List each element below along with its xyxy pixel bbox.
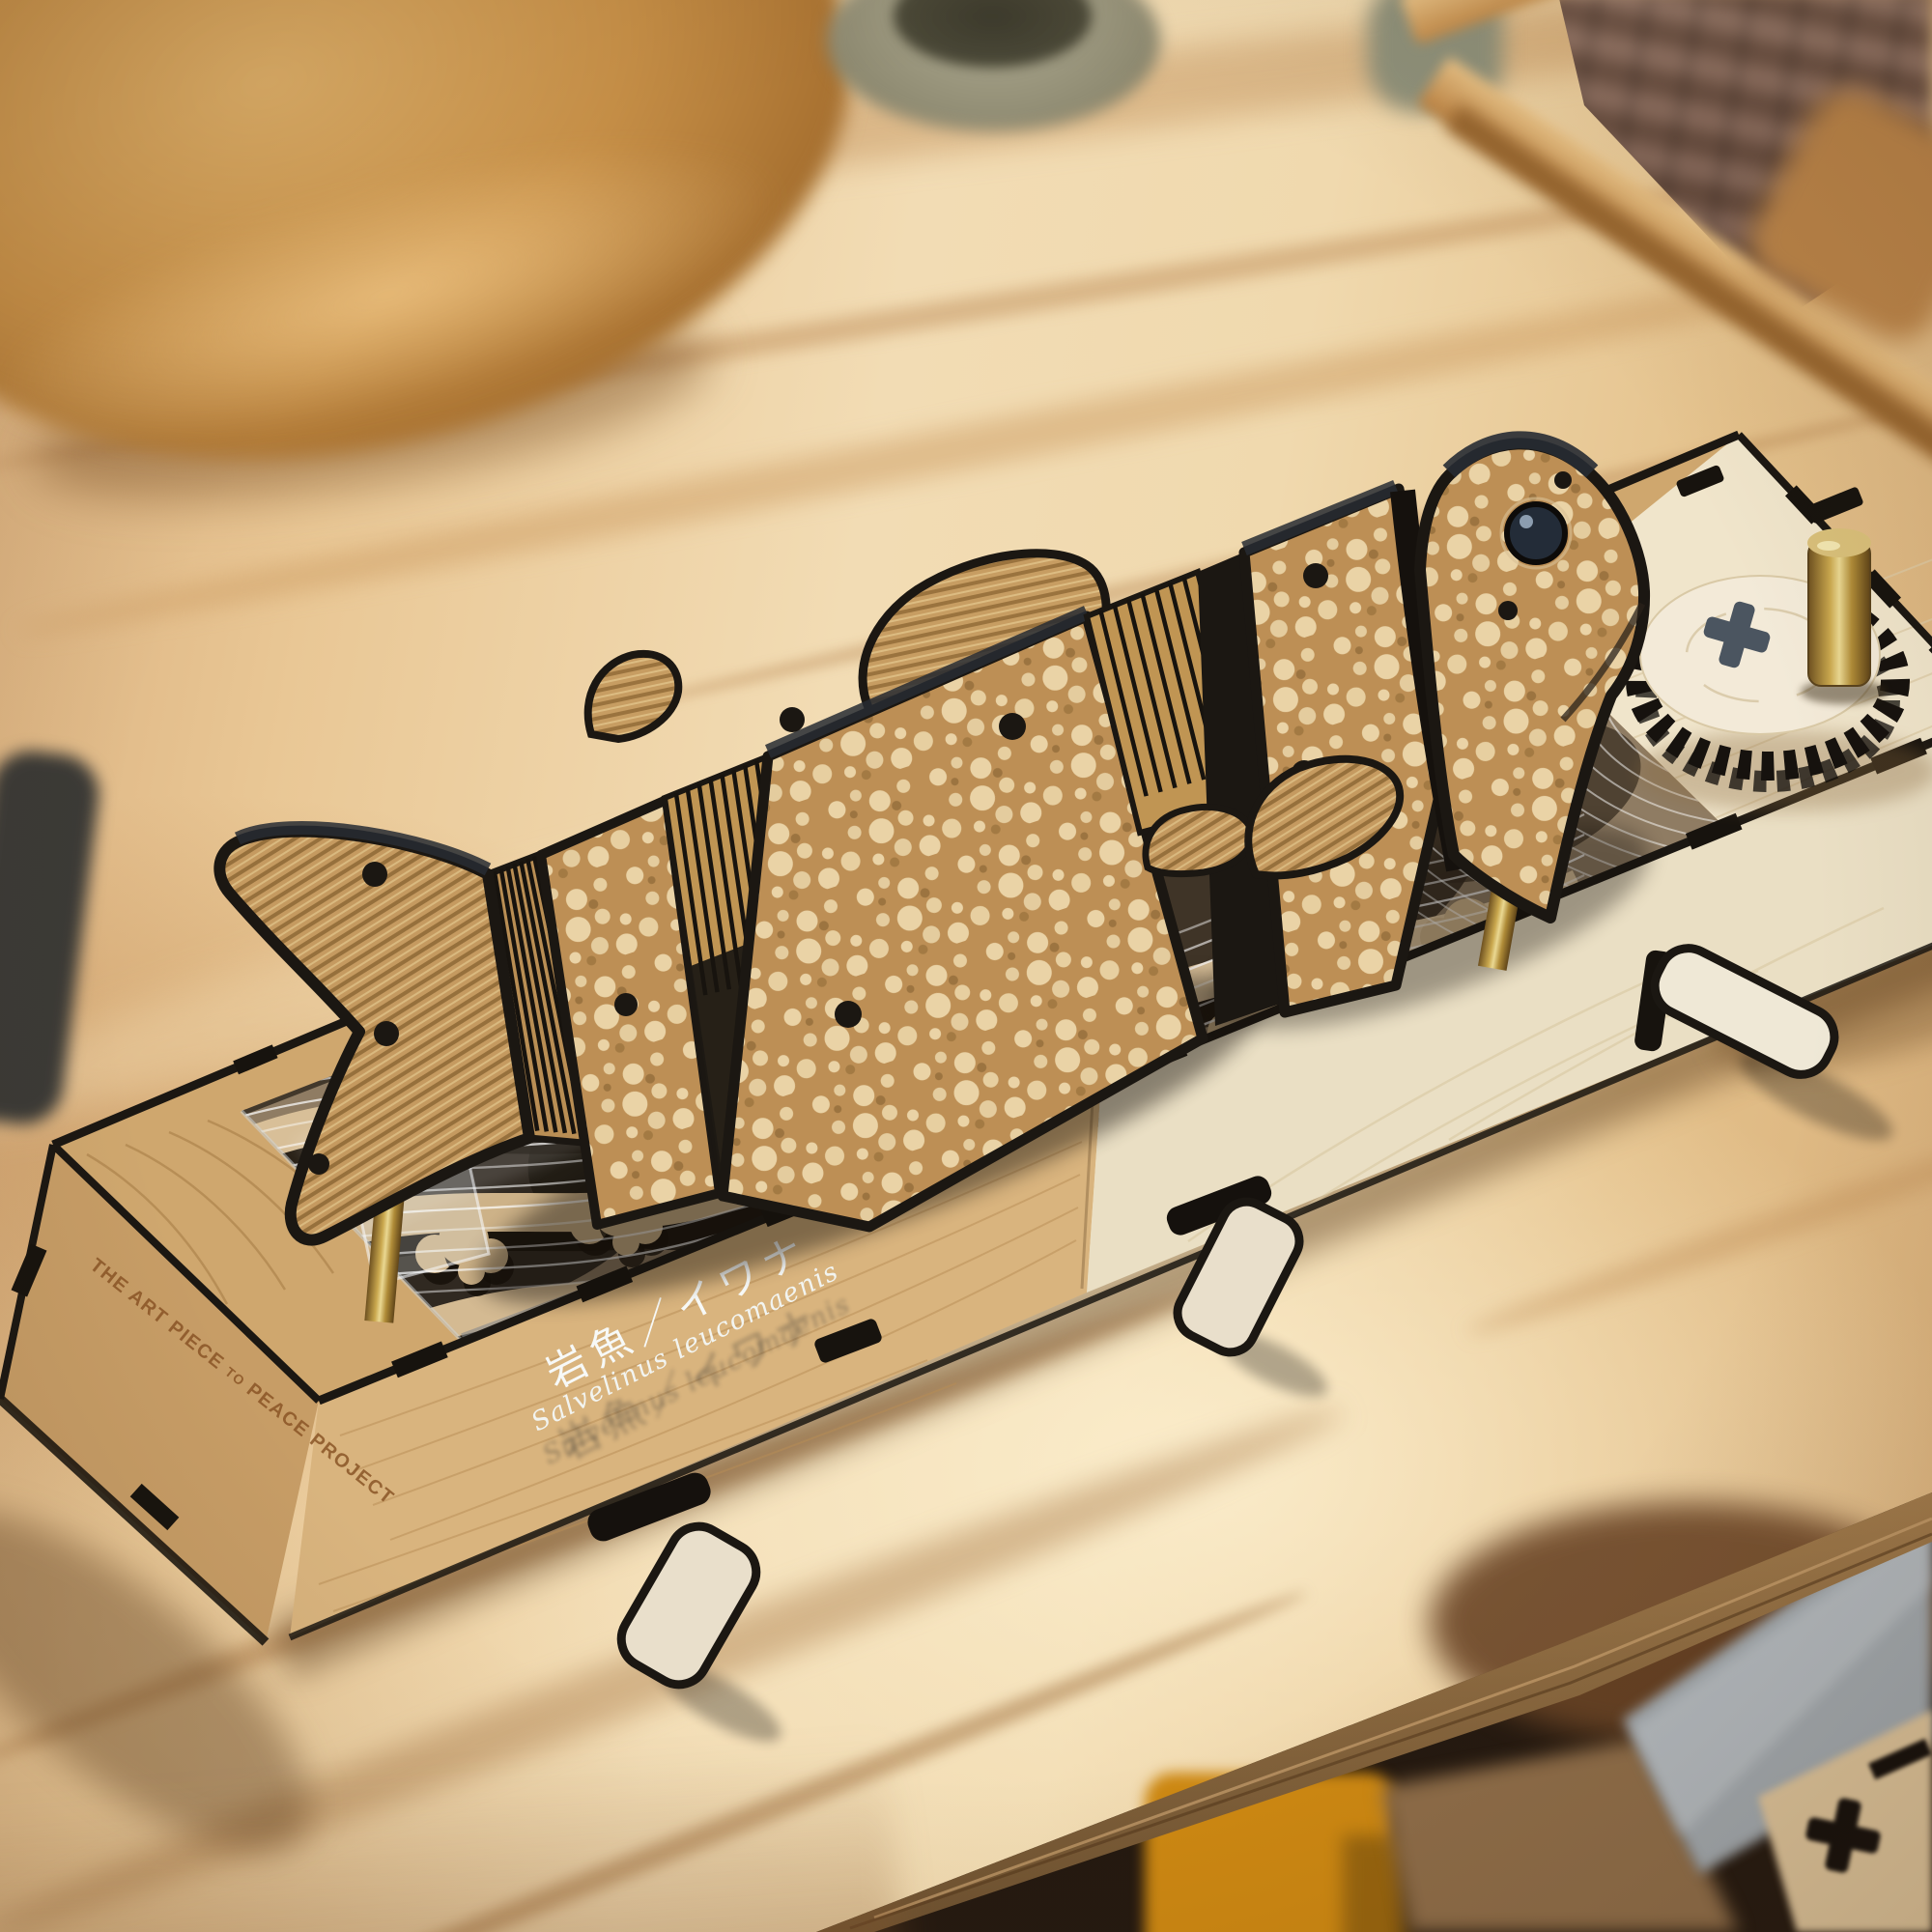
fish-eye — [1507, 504, 1565, 562]
pivot-hole — [999, 713, 1026, 740]
knob-top — [1807, 528, 1871, 557]
scene: THE ART PIECETOPEACE PROJECT 岩魚／イワナ 岩魚／イ… — [0, 0, 1932, 1932]
eye-glint — [1520, 515, 1533, 528]
pivot-hole — [308, 1153, 329, 1175]
nostril-dot — [1554, 471, 1572, 489]
pelvic-fin — [1146, 807, 1252, 873]
pivot-hole — [780, 707, 805, 732]
fish-automaton-artwork: THE ART PIECETOPEACE PROJECT 岩魚／イワナ 岩魚／イ… — [0, 0, 1932, 1932]
crank-knob — [1808, 541, 1870, 686]
adipose-fin — [588, 654, 679, 739]
knob-glint — [1817, 541, 1840, 551]
lever-tab-left — [611, 1516, 766, 1695]
chin-dot — [1498, 601, 1518, 620]
pivot-hole — [374, 1021, 399, 1046]
pivot-hole — [835, 1001, 862, 1028]
pivot-hole — [362, 862, 387, 887]
pivot-hole — [1303, 563, 1328, 588]
pivot-hole — [614, 993, 638, 1016]
under-table-area — [816, 1492, 1932, 1932]
